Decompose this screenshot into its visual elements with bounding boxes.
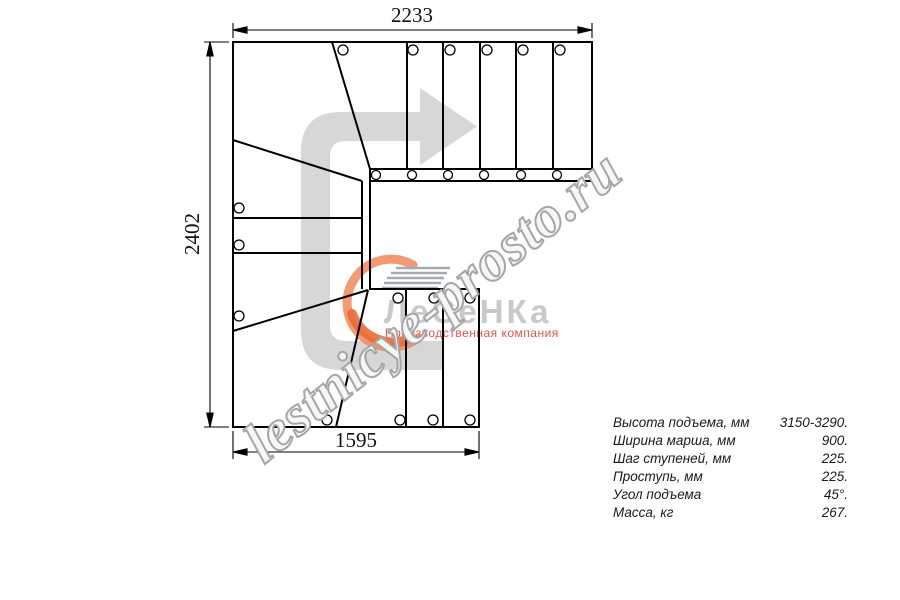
spec-row-height: Высота подъема, мм 3150-3290.	[613, 414, 848, 432]
spec-row-flight-width: Ширина марша, мм 900.	[613, 432, 848, 450]
logo-tagline: Производственная компания	[385, 326, 559, 340]
spec-value: 267.	[822, 504, 848, 522]
spec-label: Угол подъема	[613, 486, 701, 504]
spec-value: 225.	[822, 468, 848, 486]
spec-table: Высота подъема, мм 3150-3290. Ширина мар…	[613, 414, 848, 522]
spec-value: 225.	[822, 450, 848, 468]
spec-label: Ширина марша, мм	[613, 432, 736, 450]
company-logo: ЛеСеНКа Производственная компания	[347, 259, 559, 347]
spec-label: Высота подъема, мм	[613, 414, 749, 432]
dimension-left-value: 2402	[180, 213, 204, 255]
dimension-lines	[204, 23, 592, 459]
spec-value: 3150-3290.	[780, 414, 848, 432]
spec-label: Масса, кг	[613, 504, 673, 522]
spec-label: Проступь, мм	[613, 468, 703, 486]
spec-row-angle: Угол подъема 45°.	[613, 486, 848, 504]
dimension-bottom-value: 1595	[335, 428, 377, 452]
spec-row-tread: Проступь, мм 225.	[613, 468, 848, 486]
logo-steps-icon	[382, 268, 450, 288]
stair-plan-page: ЛеСеНКа Производственная компания	[0, 0, 900, 600]
spec-label: Шаг ступеней, мм	[613, 450, 731, 468]
spec-row-step: Шаг ступеней, мм 225.	[613, 450, 848, 468]
spec-value: 45°.	[824, 486, 848, 504]
spec-value: 900.	[822, 432, 848, 450]
spec-row-mass: Масса, кг 267.	[613, 504, 848, 522]
dimension-top-value: 2233	[391, 3, 433, 27]
